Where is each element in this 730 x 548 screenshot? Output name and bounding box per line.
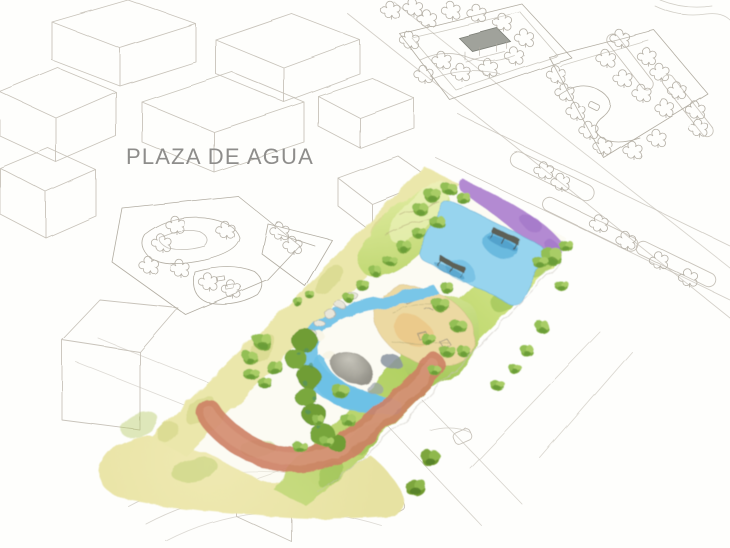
tree — [533, 320, 548, 332]
sketch-tree — [505, 47, 524, 66]
sketch-tree — [166, 216, 185, 235]
sketch-tree — [679, 269, 698, 288]
sketch-tree — [689, 119, 708, 138]
sketch-tree — [647, 129, 666, 148]
sketch-tree — [668, 82, 687, 101]
tree-dark — [404, 479, 426, 497]
sketch-tree — [555, 83, 574, 102]
tree — [492, 381, 506, 393]
sketch-tree — [451, 63, 470, 82]
pavilion-roof — [459, 28, 511, 52]
sketch-car — [588, 101, 601, 111]
tree — [520, 345, 534, 357]
sketch-tree — [610, 29, 629, 48]
sketch-tree — [222, 280, 241, 299]
sketch-tree — [623, 141, 642, 160]
sketch-tree — [152, 234, 171, 253]
sketch-tree — [596, 49, 615, 68]
sketch-tree — [170, 259, 189, 278]
masterplan-illustration: PLAZA DE AGUA — [0, 0, 730, 548]
sketch-tree — [566, 102, 585, 121]
sketch-tree — [216, 221, 235, 240]
sketch-tree — [649, 251, 668, 270]
tree-dark — [420, 450, 440, 467]
sketch-tree — [546, 65, 565, 84]
sketch-tree — [637, 47, 656, 66]
sketch-park-top — [400, 1, 572, 100]
sketch-tree — [632, 84, 651, 103]
sketch-tree — [655, 99, 674, 118]
sketch-tree — [467, 4, 486, 23]
sketch-tree — [400, 31, 419, 50]
sketch-tree — [479, 59, 498, 78]
sketch-tree — [515, 29, 534, 48]
tree — [555, 280, 569, 292]
tree — [508, 363, 521, 374]
plaza-title: PLAZA DE AGUA — [126, 144, 314, 170]
sketch-tree — [432, 51, 451, 70]
sketch-tree — [441, 1, 460, 20]
sketch-tree — [579, 121, 598, 140]
sketch-tree — [616, 231, 635, 250]
sketch-tree — [650, 63, 669, 82]
sketch-tree — [593, 137, 612, 156]
sketch-tree — [551, 173, 570, 192]
sketch-tree — [199, 273, 218, 292]
masterplan-canvas — [0, 0, 730, 548]
sketch-tree — [139, 256, 158, 275]
boulder-small — [366, 382, 382, 394]
sketch-tree — [613, 69, 632, 88]
